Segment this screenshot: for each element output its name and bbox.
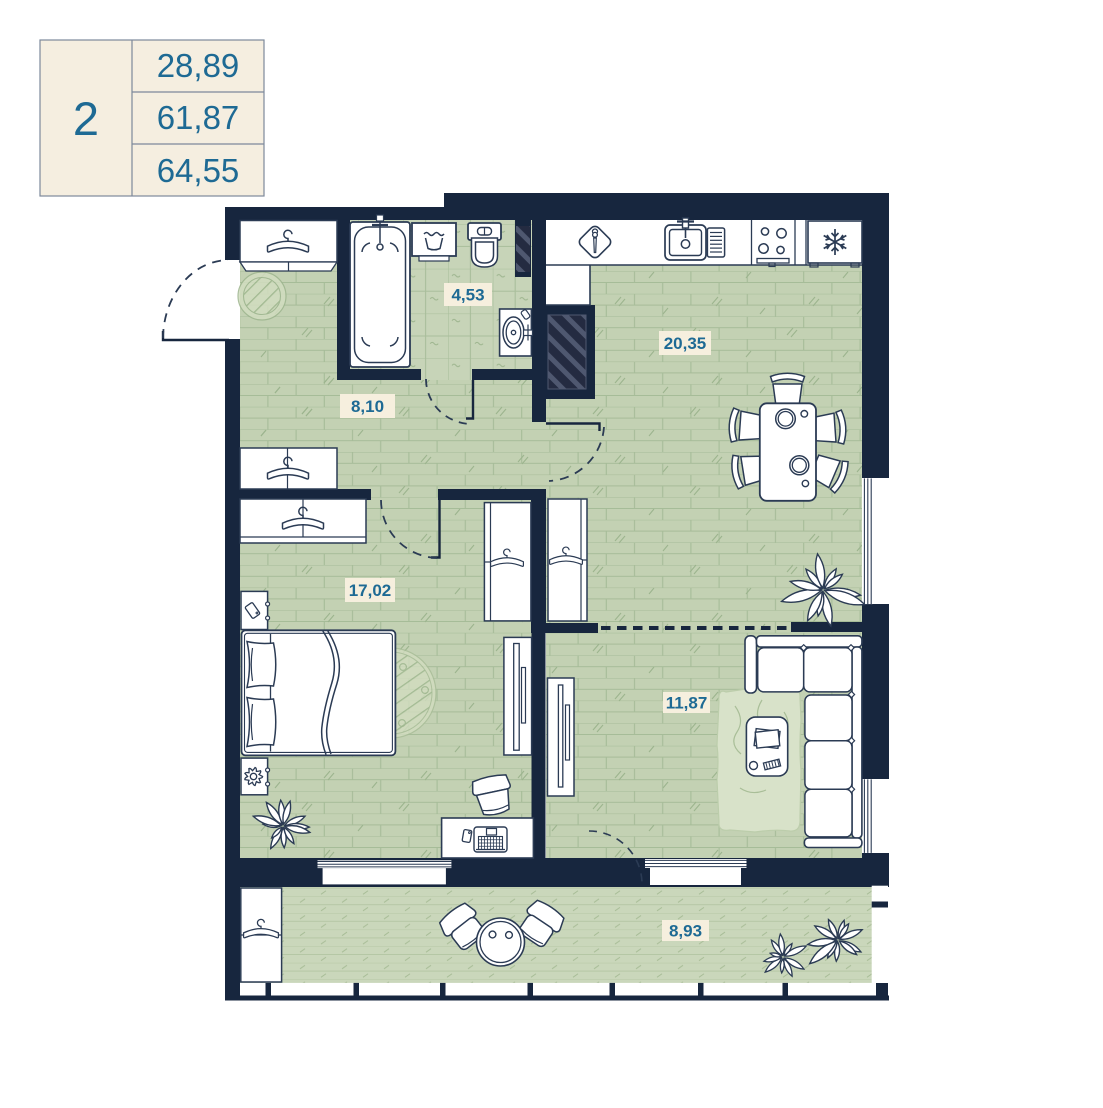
svg-text:17,02: 17,02 — [349, 581, 392, 600]
svg-text:61,87: 61,87 — [157, 99, 240, 136]
svg-text:28,89: 28,89 — [157, 47, 240, 84]
svg-text:8,93: 8,93 — [669, 922, 702, 941]
svg-text:8,10: 8,10 — [351, 397, 384, 416]
svg-text:4,53: 4,53 — [451, 286, 484, 305]
svg-text:2: 2 — [73, 92, 99, 145]
svg-text:20,35: 20,35 — [664, 334, 707, 353]
svg-text:11,87: 11,87 — [666, 694, 708, 713]
svg-text:64,55: 64,55 — [157, 152, 240, 189]
